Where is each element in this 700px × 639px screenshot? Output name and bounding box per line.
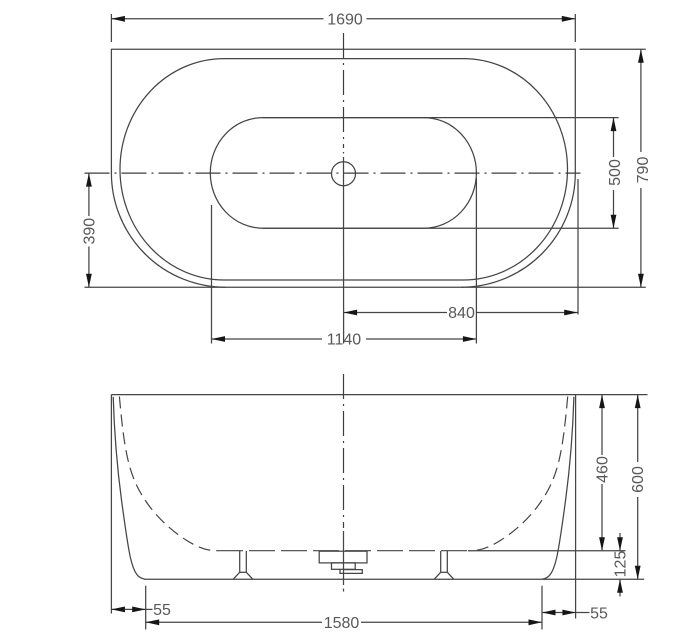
svg-text:1580: 1580 bbox=[324, 615, 360, 632]
svg-text:600: 600 bbox=[630, 466, 647, 493]
svg-text:460: 460 bbox=[594, 456, 611, 483]
svg-text:55: 55 bbox=[590, 606, 608, 623]
svg-text:1690: 1690 bbox=[327, 12, 363, 29]
svg-text:840: 840 bbox=[448, 305, 475, 322]
svg-text:1140: 1140 bbox=[327, 332, 362, 349]
svg-text:390: 390 bbox=[81, 218, 98, 245]
svg-text:500: 500 bbox=[607, 159, 624, 186]
svg-text:790: 790 bbox=[635, 157, 652, 184]
svg-text:55: 55 bbox=[153, 602, 171, 619]
svg-text:125: 125 bbox=[612, 551, 629, 578]
